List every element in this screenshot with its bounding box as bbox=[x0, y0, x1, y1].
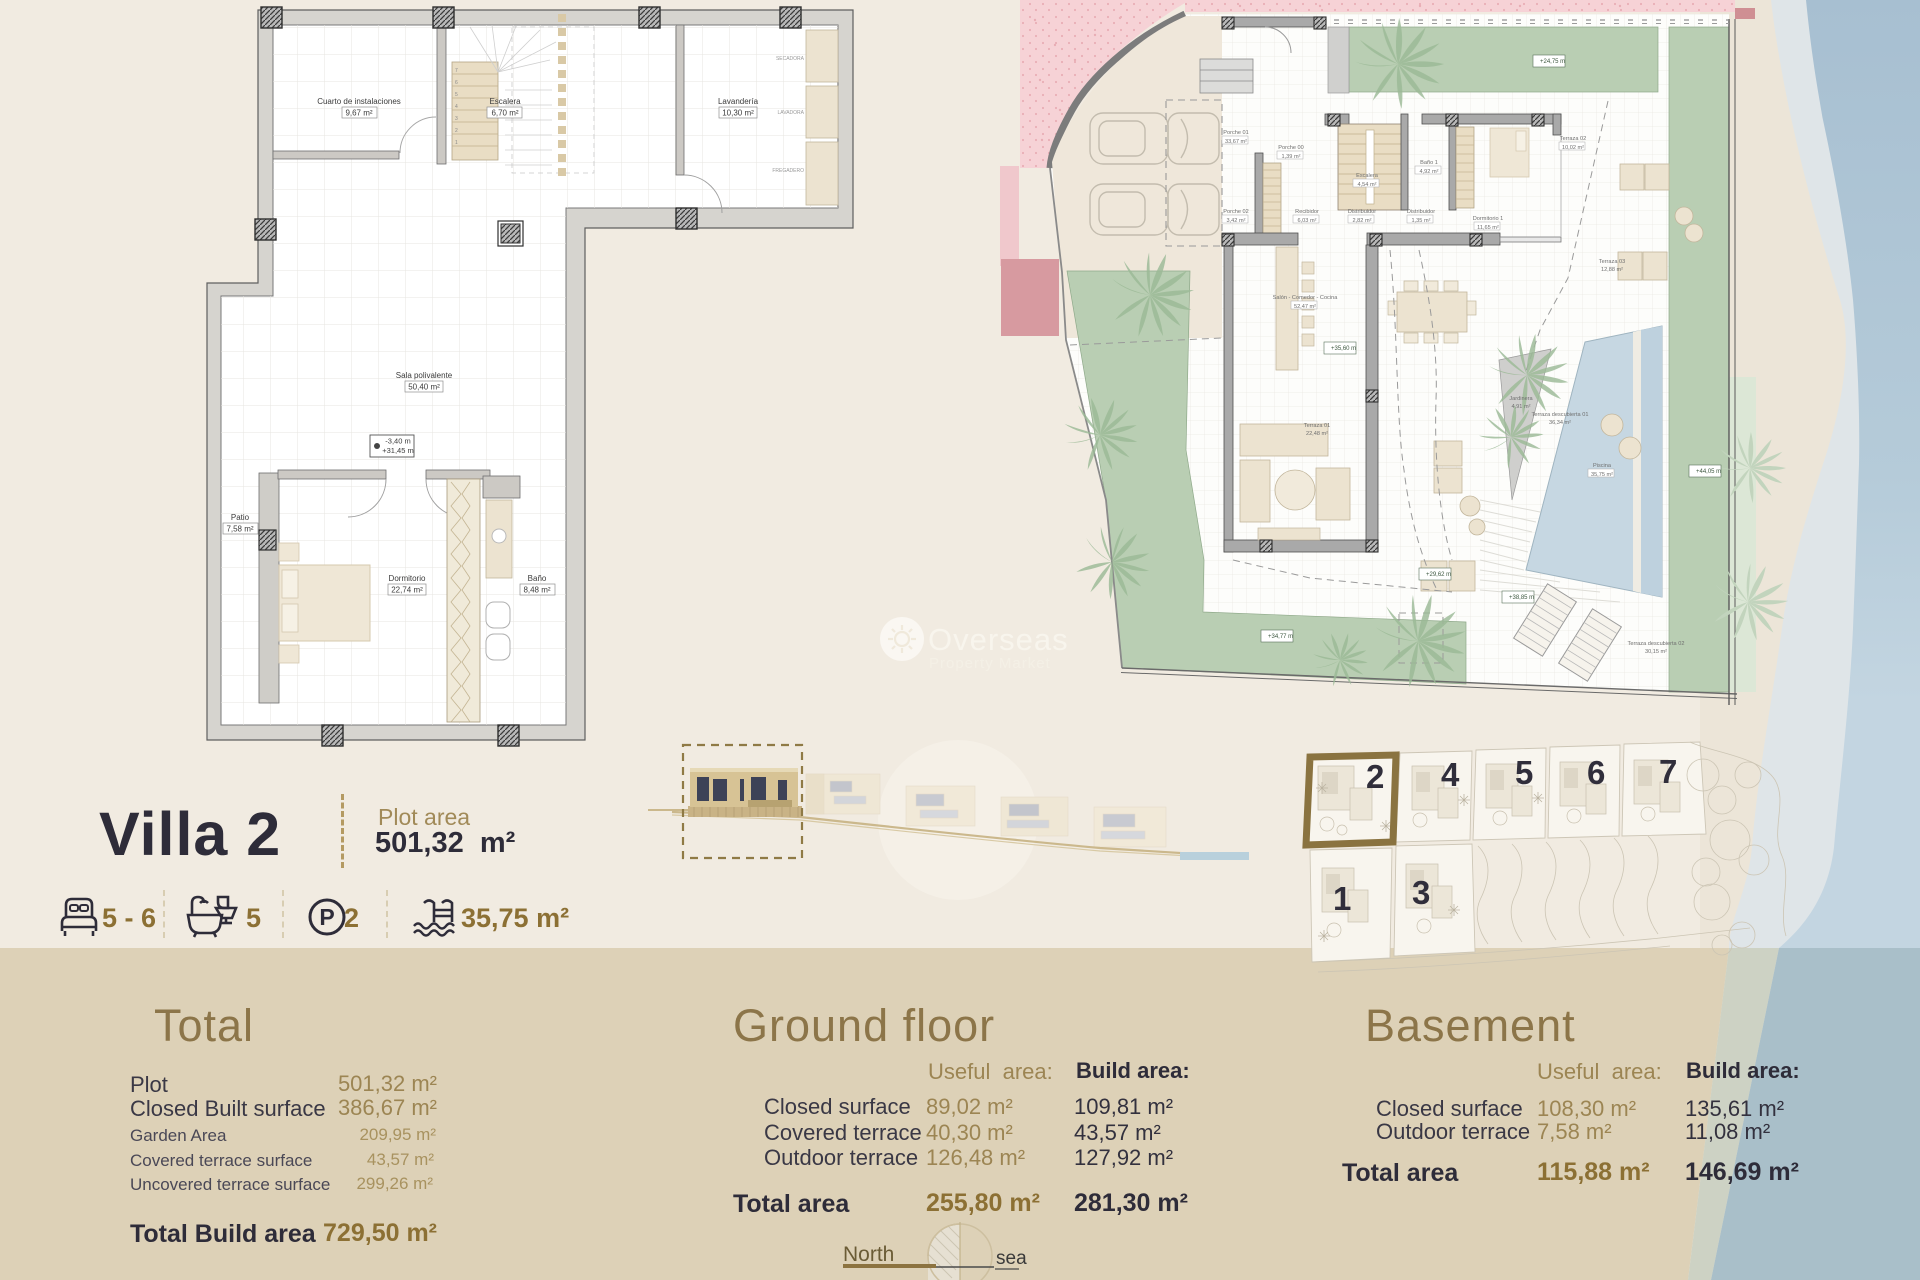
svg-text:6,03 m²: 6,03 m² bbox=[1298, 218, 1317, 224]
svg-text:Terraza 03: Terraza 03 bbox=[1599, 259, 1625, 265]
svg-text:Patio: Patio bbox=[231, 513, 250, 522]
svg-text:Dormitorio: Dormitorio bbox=[389, 574, 426, 583]
svg-text:+44,05 m: +44,05 m bbox=[1696, 469, 1721, 475]
svg-text:6,70 m²: 6,70 m² bbox=[491, 109, 518, 118]
svg-text:12,88 m²: 12,88 m² bbox=[1601, 267, 1623, 273]
svg-text:33,67 m²: 33,67 m² bbox=[1225, 139, 1247, 145]
svg-text:9,67 m²: 9,67 m² bbox=[345, 109, 372, 118]
svg-text:Porche 02: Porche 02 bbox=[1223, 209, 1249, 215]
svg-text:Jardinera: Jardinera bbox=[1509, 396, 1533, 402]
svg-text:Terraza descubierta 02: Terraza descubierta 02 bbox=[1628, 641, 1685, 647]
svg-text:30,15 m²: 30,15 m² bbox=[1645, 649, 1667, 655]
svg-text:Property Market: Property Market bbox=[929, 655, 1051, 672]
svg-text:LAVADORA: LAVADORA bbox=[778, 110, 805, 116]
svg-text:Escalera: Escalera bbox=[489, 97, 521, 106]
svg-text:Baño 1: Baño 1 bbox=[1420, 160, 1438, 166]
svg-text:+24,75 m: +24,75 m bbox=[1540, 59, 1565, 65]
svg-text:5: 5 bbox=[455, 92, 458, 98]
svg-text:Terraza 01: Terraza 01 bbox=[1304, 423, 1330, 429]
svg-text:8,48 m²: 8,48 m² bbox=[523, 586, 550, 595]
svg-text:1: 1 bbox=[1333, 880, 1351, 917]
svg-text:7: 7 bbox=[455, 68, 458, 74]
svg-text:SECADORA: SECADORA bbox=[776, 56, 805, 62]
svg-text:Baño: Baño bbox=[528, 574, 547, 583]
svg-text:11,65 m²: 11,65 m² bbox=[1477, 225, 1499, 231]
svg-text:Distribuidor: Distribuidor bbox=[1348, 209, 1376, 215]
svg-text:52,47 m²: 52,47 m² bbox=[1294, 304, 1316, 310]
svg-text:+38,85 m: +38,85 m bbox=[1509, 595, 1534, 601]
svg-text:Sala polivalente: Sala polivalente bbox=[396, 371, 453, 380]
svg-text:North: North bbox=[843, 1243, 894, 1266]
svg-text:1: 1 bbox=[455, 140, 458, 146]
svg-text:+31,45 m: +31,45 m bbox=[382, 446, 413, 455]
svg-text:4,54 m²: 4,54 m² bbox=[1358, 182, 1377, 188]
svg-text:6: 6 bbox=[1587, 754, 1605, 791]
svg-text:Escalera: Escalera bbox=[1356, 173, 1379, 179]
svg-text:4,92 m²: 4,92 m² bbox=[1420, 169, 1439, 175]
svg-text:Overseas: Overseas bbox=[928, 622, 1069, 657]
svg-text:1,39 m²: 1,39 m² bbox=[1282, 154, 1301, 160]
svg-text:10,30 m²: 10,30 m² bbox=[722, 109, 754, 118]
svg-text:7: 7 bbox=[1659, 753, 1677, 790]
svg-text:Lavandería: Lavandería bbox=[718, 97, 759, 106]
svg-text:35,75 m²: 35,75 m² bbox=[1591, 472, 1613, 478]
svg-text:22,48 m²: 22,48 m² bbox=[1306, 431, 1328, 437]
svg-text:22,74 m²: 22,74 m² bbox=[391, 586, 423, 595]
svg-text:+35,60 m: +35,60 m bbox=[1331, 346, 1356, 352]
svg-text:36,34 m²: 36,34 m² bbox=[1549, 420, 1571, 426]
svg-text:Recibidor: Recibidor bbox=[1295, 209, 1319, 215]
svg-text:Piscina: Piscina bbox=[1593, 463, 1612, 469]
svg-text:Terraza 02: Terraza 02 bbox=[1560, 136, 1586, 142]
svg-text:P: P bbox=[319, 904, 334, 930]
svg-text:1,35 m²: 1,35 m² bbox=[1412, 218, 1431, 224]
svg-text:10,02 m²: 10,02 m² bbox=[1562, 145, 1584, 151]
svg-text:4,91 m²: 4,91 m² bbox=[1512, 404, 1531, 410]
svg-text:4: 4 bbox=[1441, 756, 1460, 793]
svg-text:3,42 m²: 3,42 m² bbox=[1227, 218, 1246, 224]
svg-text:6: 6 bbox=[455, 80, 458, 86]
svg-text:3: 3 bbox=[1412, 874, 1430, 911]
svg-text:4: 4 bbox=[455, 104, 458, 110]
svg-text:+34,77 m: +34,77 m bbox=[1268, 634, 1293, 640]
svg-text:-3,40 m: -3,40 m bbox=[385, 437, 410, 446]
svg-text:3: 3 bbox=[455, 116, 458, 122]
svg-text:Dormitorio 1: Dormitorio 1 bbox=[1473, 216, 1503, 222]
svg-text:Porche 01: Porche 01 bbox=[1223, 130, 1249, 136]
svg-text:5: 5 bbox=[1515, 754, 1533, 791]
svg-text:Porche 00: Porche 00 bbox=[1278, 145, 1304, 151]
svg-text:2: 2 bbox=[455, 128, 458, 134]
svg-text:7,58 m²: 7,58 m² bbox=[226, 525, 253, 534]
svg-text:+29,62 m: +29,62 m bbox=[1426, 572, 1451, 578]
svg-text:FREGADERO: FREGADERO bbox=[772, 168, 804, 174]
svg-text:Salón - Comedor - Cocina: Salón - Comedor - Cocina bbox=[1273, 295, 1339, 301]
svg-text:2: 2 bbox=[1366, 758, 1384, 795]
svg-text:50,40 m²: 50,40 m² bbox=[408, 383, 440, 392]
svg-text:Terraza descubierta 01: Terraza descubierta 01 bbox=[1532, 412, 1589, 418]
svg-text:Cuarto de instalaciones: Cuarto de instalaciones bbox=[317, 97, 401, 106]
svg-text:2,82 m²: 2,82 m² bbox=[1353, 218, 1372, 224]
svg-text:sea: sea bbox=[996, 1248, 1027, 1269]
svg-text:Distribuidor: Distribuidor bbox=[1407, 209, 1435, 215]
